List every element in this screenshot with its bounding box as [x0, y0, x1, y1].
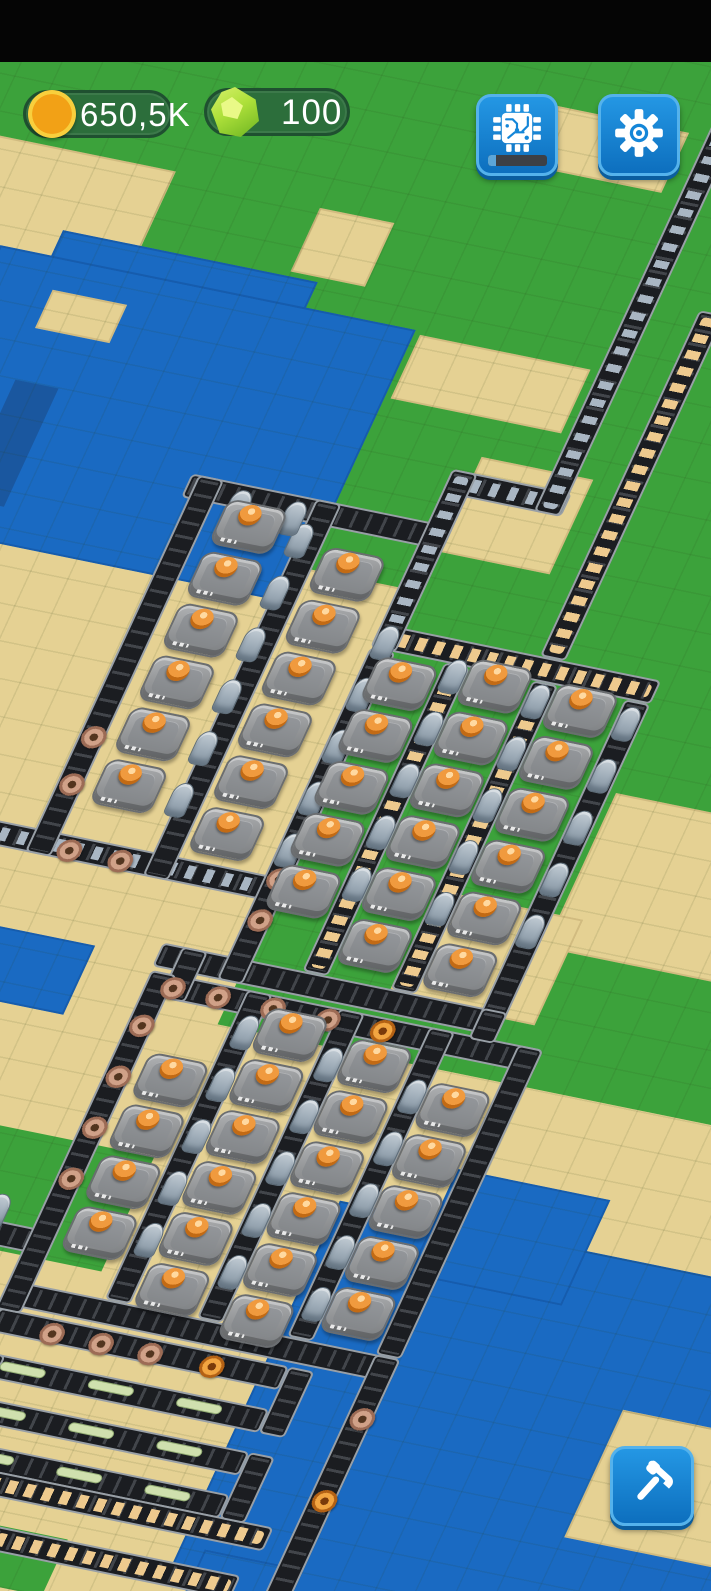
- research-progress-bar: [488, 155, 547, 166]
- machine-indicator-dot: [205, 1164, 236, 1188]
- machine-indicator-dot: [261, 706, 292, 730]
- machine-indicator-dot: [391, 1188, 422, 1212]
- machine-indicator-dot: [360, 1042, 391, 1066]
- machine-indicator-dot: [313, 1144, 344, 1168]
- machine-indicator-dot: [494, 843, 525, 867]
- hammer-icon: [625, 1457, 679, 1516]
- machine-indicator-dot: [385, 660, 416, 684]
- machine-indicator-dot: [361, 712, 392, 736]
- status-bar: [0, 0, 711, 62]
- coin-counter[interactable]: 650,5K: [23, 90, 173, 138]
- coin-icon: [28, 90, 76, 138]
- machine-indicator-dot: [181, 1215, 212, 1239]
- machine-indicator-dot: [139, 710, 170, 734]
- game-screen: 650,5K 100: [0, 0, 711, 1591]
- circuit-chip-icon: [491, 102, 543, 159]
- settings-button[interactable]: [598, 94, 680, 176]
- machine-indicator-dot: [237, 758, 268, 782]
- machine-indicator-dot: [228, 1113, 259, 1137]
- gem-counter[interactable]: 100: [204, 88, 350, 136]
- machine-indicator-dot: [456, 715, 487, 739]
- machine-indicator-dot: [309, 603, 340, 627]
- machine-indicator-dot: [566, 687, 597, 711]
- machine-indicator-dot: [446, 946, 477, 970]
- machine-indicator-dot: [438, 1086, 469, 1110]
- gem-icon: [211, 87, 259, 137]
- machine-indicator-dot: [432, 766, 463, 790]
- machine-indicator-dot: [313, 816, 344, 840]
- machine-indicator-dot: [252, 1062, 283, 1086]
- machine-indicator-dot: [242, 1297, 273, 1321]
- machine-indicator-dot: [85, 1209, 116, 1233]
- machine-indicator-dot: [480, 663, 511, 687]
- machine-indicator-dot: [211, 555, 242, 579]
- gear-icon: [613, 107, 665, 164]
- machine-indicator-dot: [336, 1093, 367, 1117]
- machine-indicator-dot: [187, 607, 218, 631]
- machine-indicator-dot: [344, 1290, 375, 1314]
- machine-indicator-dot: [132, 1107, 163, 1131]
- terrain-sand: [391, 335, 591, 434]
- machine-indicator-dot: [266, 1246, 297, 1270]
- machine-indicator-dot: [109, 1158, 140, 1182]
- machine-indicator-dot: [385, 870, 416, 894]
- game-map[interactable]: [0, 0, 711, 1591]
- machine-indicator-dot: [337, 764, 368, 788]
- machine-indicator-dot: [235, 503, 266, 527]
- machine-indicator-dot: [289, 1195, 320, 1219]
- machine-indicator-dot: [285, 655, 316, 679]
- machine-indicator-dot: [518, 791, 549, 815]
- machine-indicator-dot: [213, 810, 244, 834]
- machine-indicator-dot: [415, 1137, 446, 1161]
- machine-indicator-dot: [333, 551, 364, 575]
- machine-indicator-dot: [409, 818, 440, 842]
- machine-indicator-dot: [276, 1011, 307, 1035]
- machine-indicator-dot: [470, 895, 501, 919]
- coin-value: 650,5K: [80, 98, 191, 131]
- research-progress-fill: [488, 155, 496, 166]
- gem-value: 100: [281, 95, 342, 130]
- machine-indicator-dot: [289, 868, 320, 892]
- build-button[interactable]: [610, 1446, 694, 1526]
- terrain-sand: [291, 208, 395, 287]
- research-button[interactable]: [476, 94, 558, 176]
- machine-indicator-dot: [361, 922, 392, 946]
- machine-indicator-dot: [542, 739, 573, 763]
- machine-indicator-dot: [158, 1266, 189, 1290]
- machine-indicator-dot: [368, 1239, 399, 1263]
- machine-indicator-dot: [163, 659, 194, 683]
- machine-indicator-dot: [156, 1056, 187, 1080]
- machine-indicator-dot: [115, 762, 146, 786]
